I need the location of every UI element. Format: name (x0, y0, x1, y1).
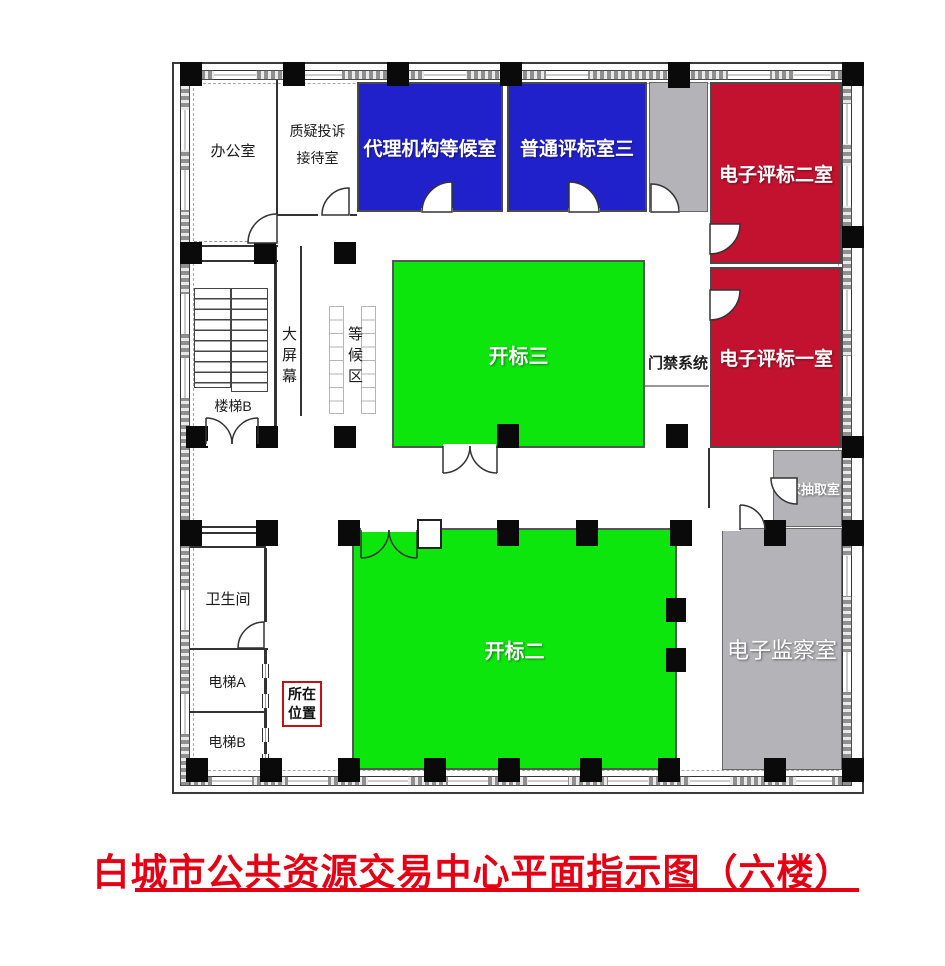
room-complaint-label-line1: 质疑投诉 (278, 118, 357, 145)
window (842, 556, 852, 596)
wall-toilet-top (190, 546, 266, 548)
column (180, 62, 202, 86)
column (256, 426, 278, 448)
column (668, 62, 690, 88)
room-elevator-b-label: 电梯B (190, 732, 264, 752)
column (842, 226, 864, 248)
wall-elevator-top (190, 648, 268, 650)
stairs-flight (194, 288, 231, 388)
room-bid-opening-2-label: 开标二 (485, 635, 545, 664)
column (666, 648, 686, 672)
room-elevator-a-label: 电梯A (190, 672, 264, 692)
column (497, 424, 519, 448)
window (690, 776, 730, 786)
room-bid-opening-2: 开标二 (352, 528, 677, 770)
window (180, 590, 190, 630)
wall-complaint-bottom (277, 214, 318, 216)
title-underline (135, 888, 859, 892)
wall-stairwell-right (274, 246, 277, 444)
column (334, 426, 356, 448)
column (764, 758, 786, 782)
column (842, 436, 864, 458)
column (658, 758, 680, 782)
wall-toilet-right (264, 548, 267, 622)
column (842, 520, 864, 546)
column (498, 758, 520, 782)
window (608, 776, 648, 786)
window (728, 70, 770, 80)
room-general-eval-3-label: 普通评标室三 (520, 134, 634, 161)
room-e-eval-2-label: 电子评标二室 (719, 160, 833, 187)
window (180, 110, 190, 150)
window (180, 694, 190, 734)
column (338, 520, 360, 546)
window (842, 166, 852, 206)
window (288, 776, 328, 786)
room-general-eval-3: 普通评标室三 (507, 82, 647, 212)
room-office-label: 办公室 (190, 140, 276, 161)
waiting-chairs (329, 306, 344, 414)
room-expert-drawing-label: 专家抽取室 (775, 479, 840, 498)
wall-big-screen (300, 246, 302, 416)
room-agency-waiting-label: 代理机构等候室 (363, 134, 496, 161)
column (186, 426, 208, 448)
window (424, 70, 466, 80)
column (334, 242, 356, 264)
room-vestibule (649, 82, 708, 212)
room-stairs-b-label: 楼梯B (198, 396, 268, 416)
current-location-line2: 位置 (288, 704, 316, 723)
podium (417, 519, 442, 549)
column (387, 62, 409, 86)
window (300, 70, 342, 80)
room-expert-drawing: 专家抽取室 (773, 450, 842, 527)
window (842, 356, 852, 396)
big-screen-label: 大屏幕 (278, 326, 299, 389)
column (670, 520, 692, 546)
column (260, 758, 282, 782)
window (448, 776, 488, 786)
window (842, 104, 852, 144)
column (338, 758, 360, 782)
room-e-eval-1: 电子评标一室 (710, 267, 842, 448)
wall-elevator-divider (190, 711, 264, 713)
access-control-line (645, 385, 709, 387)
room-e-monitoring: 电子监察室 (722, 528, 842, 770)
window (180, 294, 190, 334)
column (186, 758, 208, 782)
column (180, 520, 202, 546)
window (212, 776, 252, 786)
wall-complaint-bottom (350, 214, 357, 216)
current-location-line1: 所在 (288, 685, 316, 704)
current-location-box: 所在 位置 (282, 681, 322, 727)
waiting-zone-label: 等候区 (344, 326, 365, 389)
window (842, 290, 852, 330)
room-agency-waiting: 代理机构等候室 (357, 82, 503, 212)
window (180, 170, 190, 210)
column (842, 62, 864, 86)
room-bid-opening-3: 开标三 (392, 260, 645, 448)
elevator-door (262, 694, 269, 708)
room-complaint-label: 质疑投诉 接待室 (278, 118, 357, 171)
column (500, 62, 522, 86)
window (796, 776, 832, 786)
column (497, 520, 519, 546)
window (368, 776, 408, 786)
column (580, 758, 602, 782)
stairs-flight (231, 288, 268, 392)
column (666, 598, 686, 622)
window (214, 70, 256, 80)
room-e-eval-1-label: 电子评标一室 (719, 344, 833, 371)
room-complaint-label-line2: 接待室 (278, 145, 357, 172)
column (283, 62, 305, 86)
room-bid-opening-3-label: 开标三 (489, 340, 549, 369)
room-toilet-label: 卫生间 (190, 588, 266, 609)
column (254, 242, 276, 264)
window (180, 358, 190, 398)
window (528, 776, 568, 786)
wall-corridor-right (708, 448, 710, 508)
window (842, 652, 852, 692)
column (576, 520, 598, 546)
room-e-eval-2: 电子评标二室 (710, 82, 842, 264)
column (842, 758, 864, 782)
access-control-label: 门禁系统 (646, 352, 710, 373)
column (256, 520, 278, 546)
room-e-monitoring-label: 电子监察室 (727, 633, 837, 665)
column (424, 758, 446, 782)
window (794, 70, 830, 80)
column (764, 520, 786, 546)
column (666, 424, 688, 448)
window (546, 70, 588, 80)
column (180, 242, 202, 264)
floor-plan-page: 代理机构等候室 普通评标室三 电子评标二室 电子评标一室 开标三 开标二 专家抽… (0, 0, 945, 966)
